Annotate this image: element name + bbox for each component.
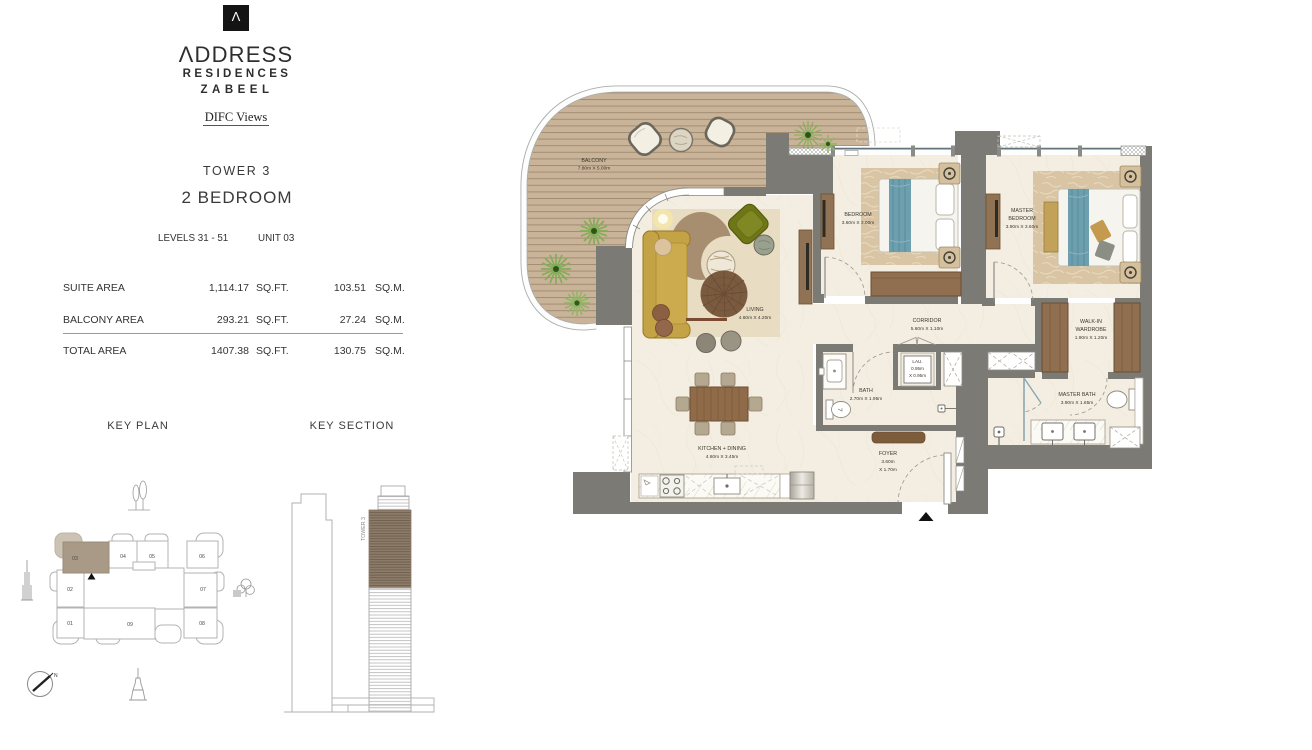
svg-text:08: 08: [199, 621, 205, 627]
svg-text:X 1.70m: X 1.70m: [879, 467, 897, 473]
svg-text:09: 09: [127, 622, 133, 628]
svg-text:06: 06: [199, 554, 205, 560]
svg-text:02: 02: [67, 587, 73, 593]
svg-text:3.90m X 3.60m: 3.90m X 3.60m: [1006, 224, 1039, 230]
svg-text:CORRIDOR: CORRIDOR: [913, 318, 942, 324]
svg-text:4.60m X 4.20m: 4.60m X 4.20m: [739, 315, 772, 321]
svg-text:3.60m: 3.60m: [881, 459, 894, 465]
svg-text:BEDROOM: BEDROOM: [1008, 216, 1035, 222]
svg-text:X 0.95m: X 0.95m: [909, 373, 926, 378]
svg-text:01: 01: [67, 621, 73, 627]
svg-text:0.95m: 0.95m: [911, 366, 924, 371]
svg-text:TOWER 3: TOWER 3: [361, 517, 367, 541]
svg-text:KITCHEN + DINING: KITCHEN + DINING: [698, 446, 746, 452]
svg-text:N: N: [54, 673, 58, 679]
svg-text:4.60m X 3.45m: 4.60m X 3.45m: [706, 454, 739, 460]
svg-text:LIVING: LIVING: [746, 307, 763, 313]
svg-text:7.80m X 5.00m: 7.80m X 5.00m: [578, 166, 611, 172]
svg-text:MASTER: MASTER: [1011, 208, 1033, 214]
svg-text:3.60m X 3.00m: 3.60m X 3.00m: [842, 220, 875, 226]
svg-text:05: 05: [149, 554, 155, 560]
svg-text:5.60m X 1.10m: 5.60m X 1.10m: [911, 326, 944, 332]
svg-text:04: 04: [120, 554, 126, 560]
svg-text:WARDROBE: WARDROBE: [1076, 327, 1107, 333]
svg-text:WALK-IN: WALK-IN: [1080, 319, 1102, 325]
svg-text:FOYER: FOYER: [879, 451, 897, 457]
svg-text:2.70m X 1.95m: 2.70m X 1.95m: [850, 396, 883, 402]
svg-text:LAU.: LAU.: [912, 359, 922, 364]
svg-text:3.90m X 1.65m: 3.90m X 1.65m: [1061, 400, 1094, 406]
svg-text:BATH: BATH: [859, 388, 873, 394]
svg-text:MASTER BATH: MASTER BATH: [1058, 392, 1095, 398]
svg-text:03: 03: [72, 556, 78, 562]
svg-text:BALCONY: BALCONY: [581, 158, 607, 164]
svg-text:BEDROOM: BEDROOM: [844, 212, 871, 218]
svg-text:07: 07: [200, 587, 206, 593]
svg-text:1.90m X 1.20m: 1.90m X 1.20m: [1075, 335, 1108, 341]
